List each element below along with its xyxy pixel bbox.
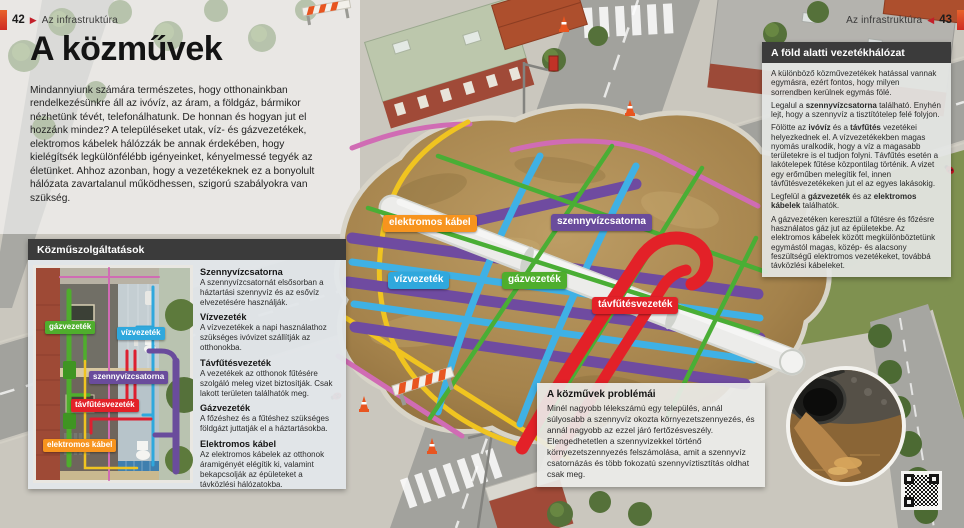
scene-label-sewage: szennyvízcsatorna [551,214,652,231]
intro-paragraph: Mindannyiunk számára természetes, hogy o… [30,84,330,205]
scene-label-electric: elektromos kábel [383,215,477,232]
house-label-heating: távfűtésvezeték [71,399,139,412]
entry-description: A szennyvízcsatornát elsősorban a háztar… [200,278,340,307]
sidebar-paragraph: A gázvezetéken keresztül a fűtésre és fő… [771,215,942,271]
services-box-header: Közműszolgáltatások [28,239,346,260]
page-number: 42 [12,14,25,26]
services-box-body: gázvezeték vízvezeték szennyvízcsatorna … [28,260,346,489]
entry-description: A főzéshez és a fűtéshez szükséges földg… [200,414,340,434]
house-label-gas: gázvezeték [45,321,95,334]
entry-description: A vízvezetékek a napi használathoz szüks… [200,323,340,352]
house-cutaway-illustration: gázvezeték vízvezeték szennyvízcsatorna … [33,265,193,483]
phone-booth [549,56,558,71]
problems-box-title: A közművek problémái [547,389,755,400]
house-label-sewage: szennyvízcsatorna [89,371,168,384]
section-title: Az infrastruktúra [846,15,922,26]
services-entries: Szennyvízcsatorna A szennyvízcsatornát e… [200,262,340,489]
entry-term: Vízvezeték [200,312,340,322]
edge-accent-bar [0,10,7,30]
sidebar-paragraph: Legfelül a gázvezeték és az elektromos k… [771,192,942,211]
page-title: A közművek [30,30,222,69]
entry-term: Elektromos kábel [200,439,340,449]
house-label-water: vízvezeték [117,327,165,340]
sidebar-paragraph: Legalul a szennyvízcsatorna található. E… [771,101,942,120]
book-spread: 42 ▶ Az infrastruktúra Az infrastruktúra… [0,0,964,528]
services-box: Közműszolgáltatások [28,239,346,489]
section-title: Az infrastruktúra [42,15,118,26]
scene-label-water: vízvezeték [388,272,449,289]
underground-network-box: A föld alatti vezetékhálózat A különböző… [762,42,951,277]
underground-network-header: A föld alatti vezetékhálózat [762,42,951,63]
problems-box: A közművek problémái Minél nagyobb lélek… [537,383,765,487]
problems-box-text: Minél nagyobb lélekszámú egy település, … [547,403,755,479]
sidebar-paragraph: Fölötte az ivóvíz és a távfűtés vezetéke… [771,123,942,188]
entry-term: Távfűtésvezeték [200,358,340,368]
house-label-electric: elektromos kábel [43,439,116,452]
scene-label-gas: gázvezeték [502,272,567,289]
triangle-right-icon: ▶ [30,15,37,26]
qr-code [901,471,942,510]
edge-accent-bar [957,10,964,30]
page-number: 43 [939,14,952,26]
entry-description: Az elektromos kábelek az otthonok áramig… [200,450,340,489]
entry-term: Gázvezeték [200,403,340,413]
entry-term: Szennyvízcsatorna [200,267,340,277]
page-header-right: Az infrastruktúra ◀ 43 [846,10,964,30]
scene-label-heating: távfűtésvezeték [592,297,678,314]
sidebar-paragraph: A különböző közművezetékek hatással vann… [771,69,942,97]
triangle-left-icon: ◀ [927,15,934,26]
page-header-left: 42 ▶ Az infrastruktúra [0,10,118,30]
entry-description: A vezetékek az otthonok fűtésére szolgál… [200,369,340,398]
underground-network-body: A különböző közművezetékek hatással vann… [762,63,951,277]
